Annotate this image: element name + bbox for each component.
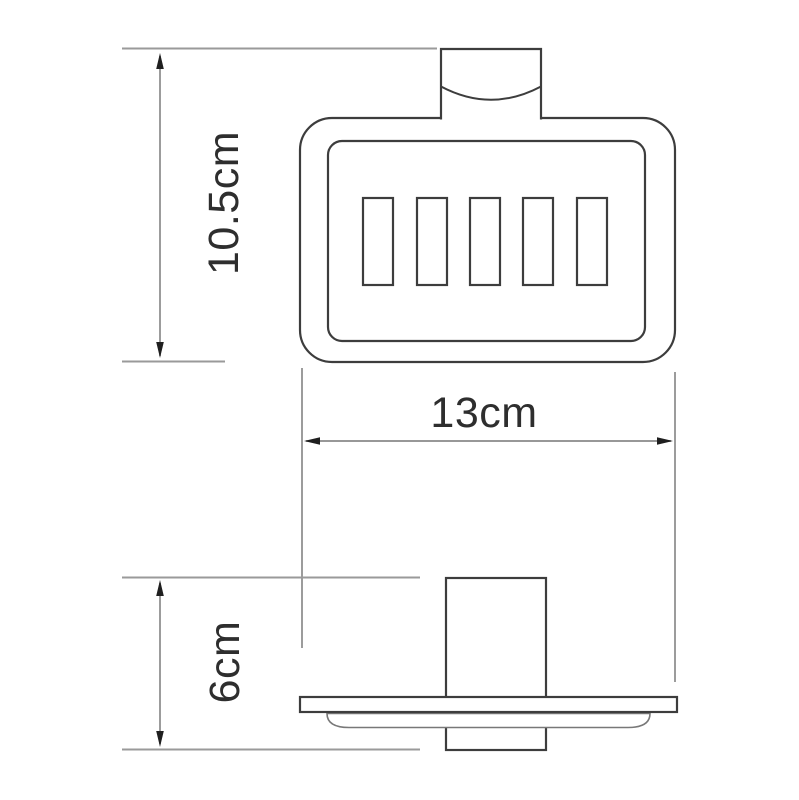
height-dimension-label: 10.5cm	[200, 131, 248, 275]
dish-bulge	[327, 714, 650, 728]
arrow-down-icon	[156, 731, 164, 747]
height-dimension: 10.5cm	[122, 49, 437, 362]
mounting-bracket-body	[442, 48, 540, 120]
width-dimension-label: 13cm	[430, 389, 537, 437]
arrow-down-icon	[156, 342, 164, 358]
arrow-right-icon	[657, 437, 673, 445]
front-outer-frame	[300, 118, 675, 362]
shelf-plate	[300, 697, 677, 712]
technical-drawing-page: 10.5cm 13cm 6cm	[0, 0, 799, 800]
soap-dish-dimension-drawing: 10.5cm 13cm 6cm	[0, 0, 799, 800]
drain-slot-5	[577, 198, 607, 285]
drain-slot-2	[417, 198, 447, 285]
arrow-up-icon	[156, 53, 164, 69]
front-inner-frame	[328, 141, 645, 341]
side-view	[300, 578, 677, 750]
arrow-left-icon	[304, 437, 320, 445]
drain-slots	[363, 198, 607, 285]
front-view	[300, 48, 675, 362]
arrow-up-icon	[156, 580, 164, 596]
depth-dimension-label: 6cm	[201, 621, 249, 704]
drain-slot-4	[523, 198, 553, 285]
drain-slot-1	[363, 198, 393, 285]
drain-slot-3	[470, 198, 500, 285]
